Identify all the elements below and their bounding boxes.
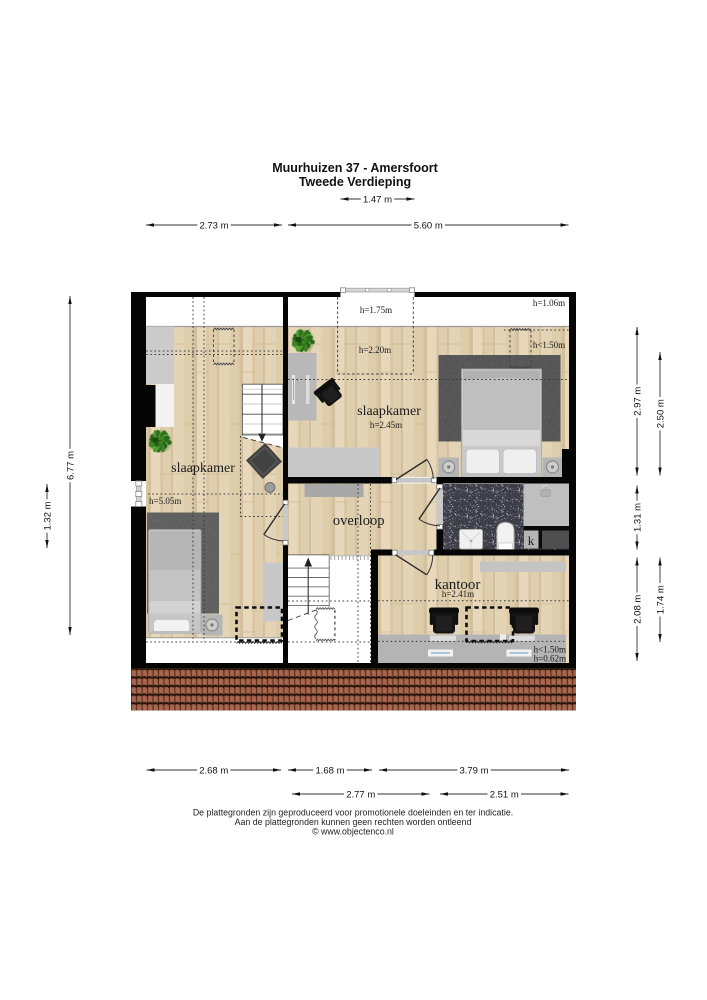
svg-text:slaapkamer: slaapkamer xyxy=(357,404,421,419)
svg-text:1.31 m: 1.31 m xyxy=(632,503,643,532)
svg-text:2.73 m: 2.73 m xyxy=(199,220,228,231)
svg-text:1.68 m: 1.68 m xyxy=(315,765,344,776)
svg-text:2.08 m: 2.08 m xyxy=(632,595,643,624)
svg-text:Tweede Verdieping: Tweede Verdieping xyxy=(299,175,411,189)
svg-text:2.50 m: 2.50 m xyxy=(655,399,666,428)
svg-text:6.77 m: 6.77 m xyxy=(65,451,76,480)
svg-text:Aan de plattegronden kunnen ge: Aan de plattegronden kunnen geen rechten… xyxy=(235,817,472,827)
svg-text:h=1.75m: h=1.75m xyxy=(360,305,392,315)
svg-text:1.47 m: 1.47 m xyxy=(363,194,392,205)
svg-text:slaapkamer: slaapkamer xyxy=(171,461,235,476)
svg-text:h=0.62m: h=0.62m xyxy=(534,654,566,664)
svg-text:2.51 m: 2.51 m xyxy=(490,789,519,800)
svg-text:h=5.05m: h=5.05m xyxy=(149,496,181,506)
svg-text:© www.objectenco.nl: © www.objectenco.nl xyxy=(312,827,394,837)
svg-text:5.60 m: 5.60 m xyxy=(414,220,443,231)
svg-text:1.74 m: 1.74 m xyxy=(655,585,666,614)
svg-text:2.77 m: 2.77 m xyxy=(346,789,375,800)
svg-text:Muurhuizen 37 - Amersfoort: Muurhuizen 37 - Amersfoort xyxy=(272,161,438,175)
svg-text:overloop: overloop xyxy=(333,513,385,529)
svg-text:1.32 m: 1.32 m xyxy=(42,501,53,530)
svg-text:h=2.20m: h=2.20m xyxy=(359,345,391,355)
svg-text:h=2.41m: h=2.41m xyxy=(442,589,474,599)
svg-text:h=1.06m: h=1.06m xyxy=(533,298,565,308)
svg-text:2.97 m: 2.97 m xyxy=(632,387,643,416)
svg-text:De plattegronden zijn geproduc: De plattegronden zijn geproduceerd voor … xyxy=(193,808,513,818)
svg-text:h<1.50m: h<1.50m xyxy=(533,340,565,350)
svg-text:2.68 m: 2.68 m xyxy=(199,765,228,776)
svg-text:k: k xyxy=(528,533,535,548)
svg-text:3.79 m: 3.79 m xyxy=(459,765,488,776)
svg-text:h=2.45m: h=2.45m xyxy=(370,420,402,430)
